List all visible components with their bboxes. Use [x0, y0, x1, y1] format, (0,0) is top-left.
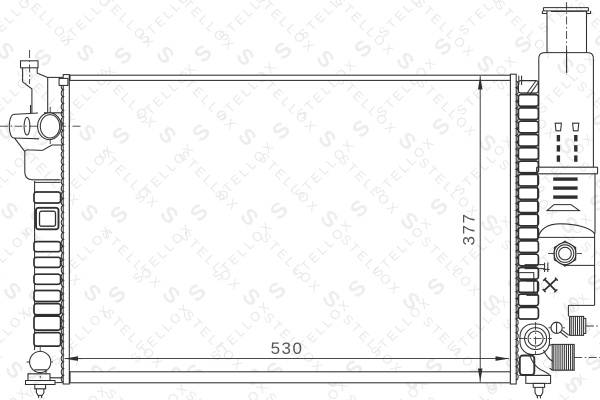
svg-text:377: 377: [460, 213, 479, 246]
svg-text:530: 530: [271, 339, 304, 358]
